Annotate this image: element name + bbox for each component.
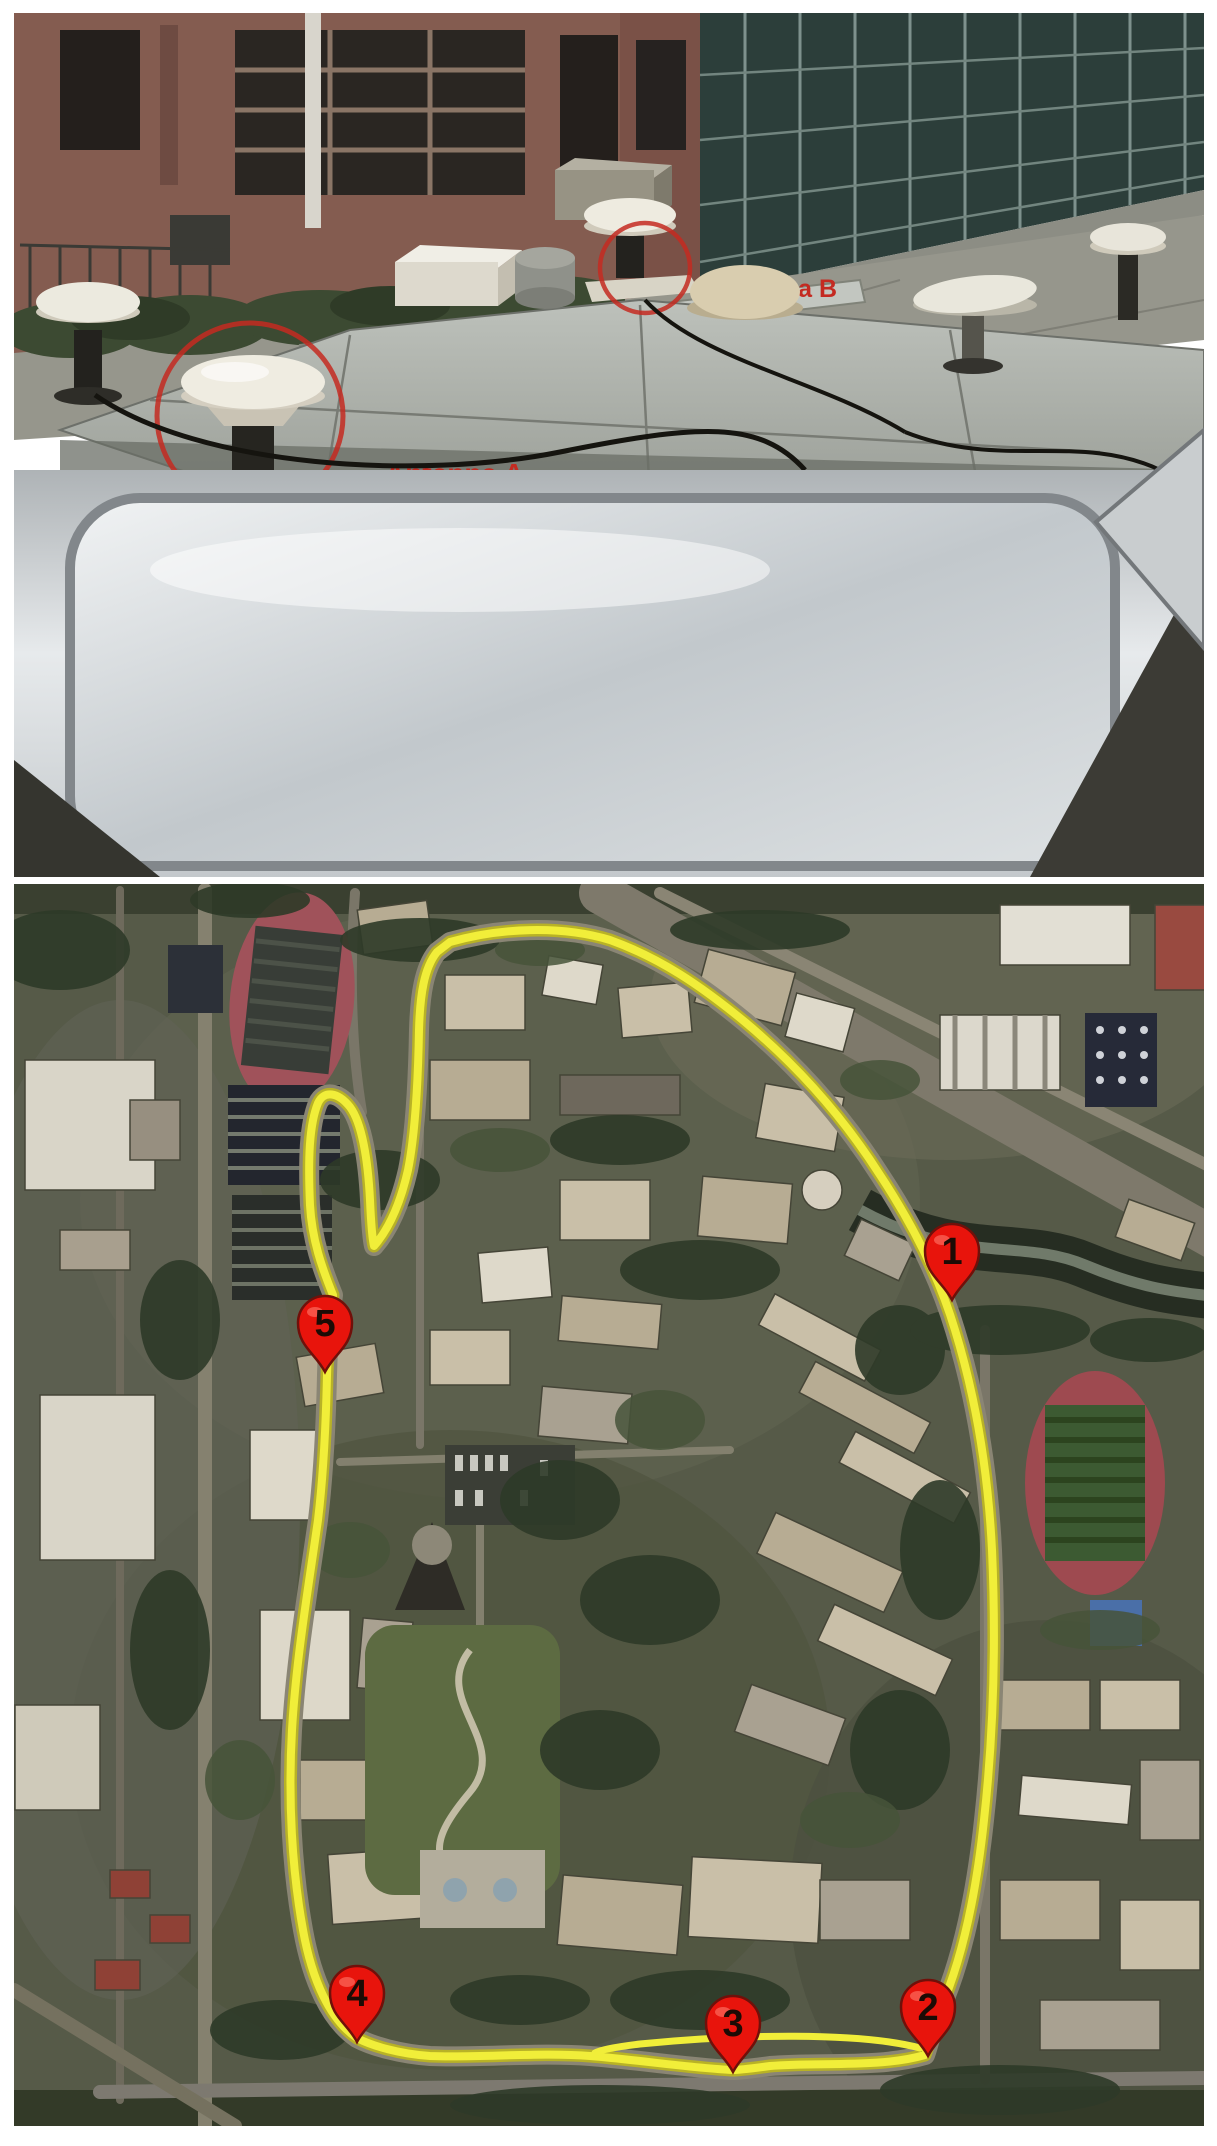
gray-drum-equipment [515,247,575,309]
central-park [365,1625,560,1928]
marker-number: 1 [941,1231,962,1273]
vehicle-roof [14,430,1204,877]
marker-number: 3 [722,2003,743,2045]
map-panel-driving-route: 1 2 3 4 [14,884,1204,2126]
white-instrument-box [395,245,522,306]
photo-panel-rooftop-antennas: Antenna B [14,13,1204,877]
two-panel-field-test-figure: Antenna B [0,0,1217,2146]
marker-number: 5 [314,1303,335,1345]
photo-illustration: Antenna B [14,13,1204,877]
satellite-map: 1 2 3 4 [14,884,1204,2126]
marker-number: 2 [917,1987,938,2029]
marker-number: 4 [346,1973,367,2015]
